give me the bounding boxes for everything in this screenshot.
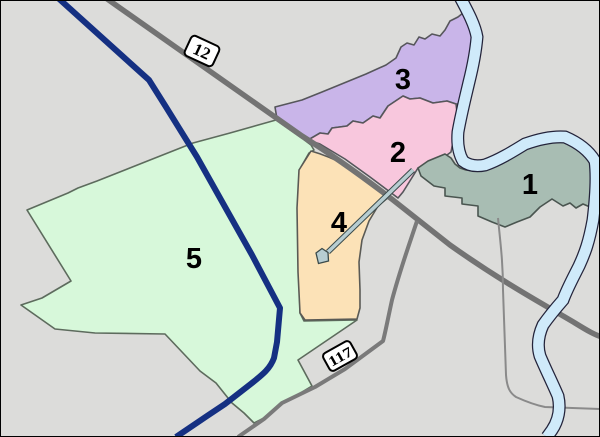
- svg-text:1: 1: [522, 169, 538, 201]
- svg-text:2: 2: [390, 137, 406, 169]
- svg-text:3: 3: [395, 64, 411, 96]
- svg-text:5: 5: [186, 243, 202, 275]
- svg-text:4: 4: [331, 207, 347, 239]
